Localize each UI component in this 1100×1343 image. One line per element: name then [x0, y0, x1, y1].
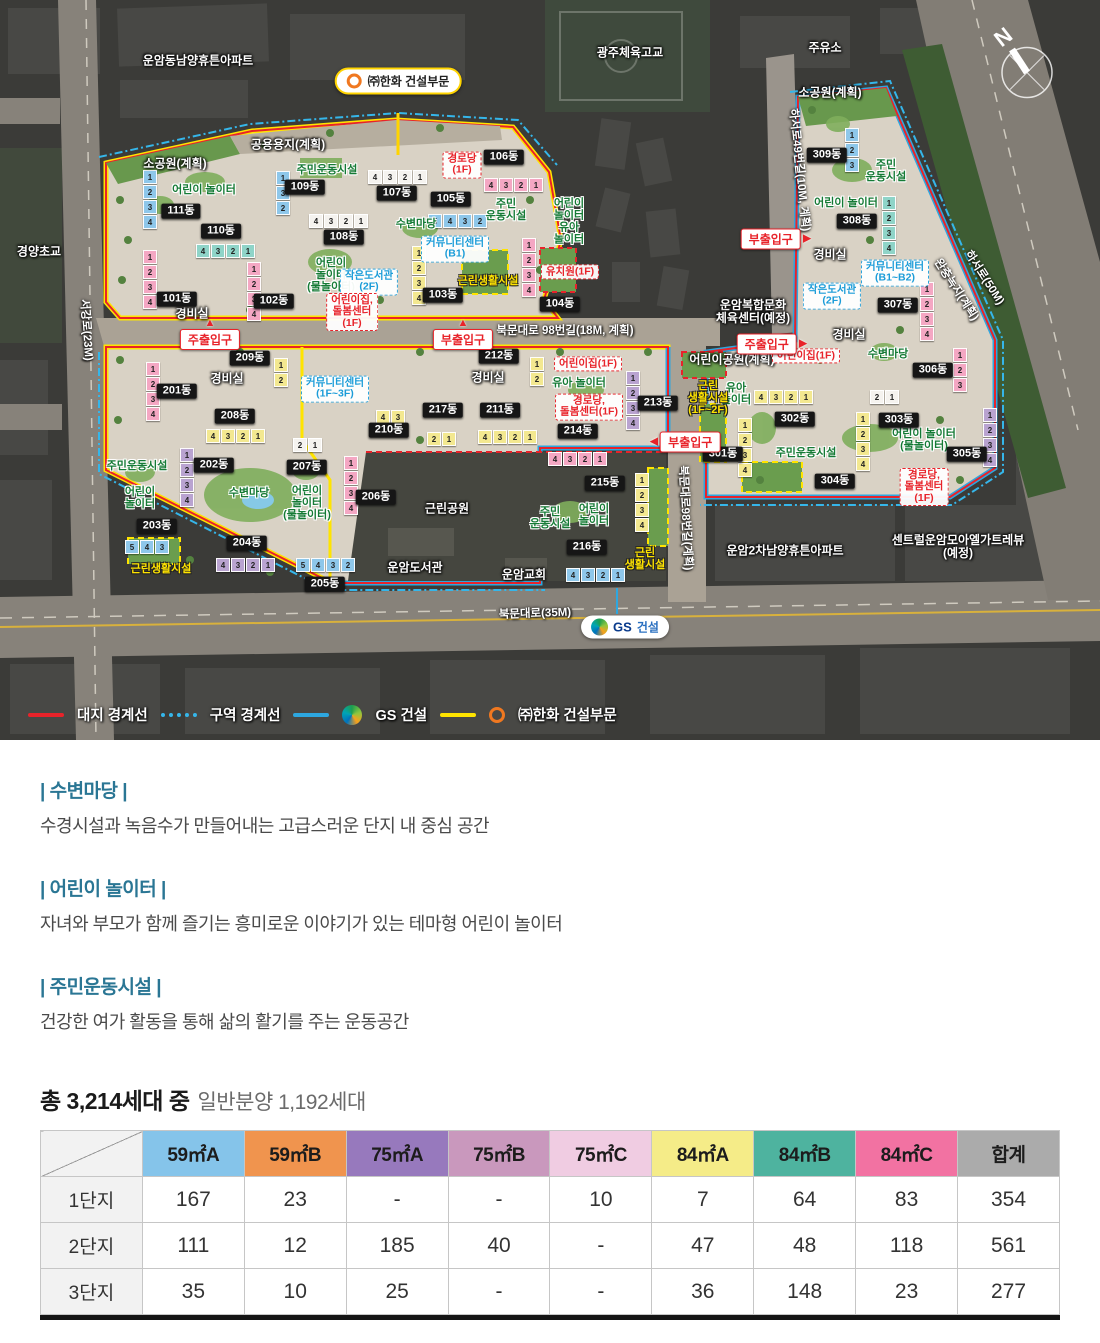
facility-label-red: 유치원(1F)	[541, 264, 599, 279]
unit-cell: 4	[566, 568, 580, 582]
building-badge: 101동	[157, 292, 197, 307]
unit-cell: 3	[845, 158, 859, 172]
landmark-label: 공용용지(계획)	[251, 139, 325, 152]
landmark-label: 소공원(계획)	[798, 87, 861, 100]
unit-cell: 4	[180, 493, 194, 507]
building-units: 543	[125, 540, 169, 554]
unit-cell: 2	[226, 244, 240, 258]
unit-cell: 3	[635, 503, 649, 517]
building-units: 21	[870, 390, 899, 404]
landmark-label: 운암2차남양휴튼아파트	[726, 545, 843, 558]
unit-cell: 1	[261, 558, 275, 572]
landmark-label: 운암교회	[502, 569, 546, 582]
facility-label-red: 경로당, 돌봄센터(1F)	[555, 394, 623, 421]
table-header-cell: 75㎡C	[550, 1131, 652, 1177]
facility-label-green: 주민운동시설	[776, 448, 837, 460]
facility-label-green: 유아 놀이터	[552, 378, 606, 390]
landmark-label: 광주체육고교	[597, 47, 663, 60]
value-cell: 48	[754, 1223, 856, 1269]
unit-cell: 1	[885, 390, 899, 404]
value-cell: -	[448, 1269, 550, 1315]
building-badge: 207동	[287, 460, 327, 475]
building-badge: 104동	[540, 297, 580, 312]
legend-hanwha-label: ㈜한화 건설부문	[518, 704, 617, 725]
unit-cell: 2	[344, 471, 358, 485]
landmark-label: 센트럴운암모아엘가트레뷰(예정)	[887, 534, 1029, 560]
unit-cell: 3	[493, 430, 507, 444]
unit-cell: 3	[581, 568, 595, 582]
unit-cell: 2	[236, 429, 250, 443]
unit-cell: 2	[143, 185, 157, 199]
hanwha-logo-icon	[347, 74, 362, 89]
entrance-marker: ▲주출입구	[180, 318, 240, 350]
svg-text:N: N	[989, 23, 1017, 52]
unit-cell: 2	[143, 265, 157, 279]
unit-cell: 4	[635, 518, 649, 532]
building-units: 4321	[206, 429, 265, 443]
building-badge: 205동	[305, 577, 345, 592]
unit-cell: 2	[738, 433, 752, 447]
summary-general: 일반분양 1,192세대	[197, 1091, 365, 1114]
unit-cell: 2	[412, 261, 426, 275]
facility-label-green: 주민운동시설	[107, 461, 168, 473]
entrance-marker: 주출입구▶	[737, 334, 808, 355]
building-badge: 102동	[254, 294, 294, 309]
facility-label-red: 경로당, 돌봄센터 (1F)	[900, 468, 949, 506]
table-header-cell: 84㎡C	[856, 1131, 958, 1177]
facility-label-yellow: 근린 생활시설	[625, 548, 665, 572]
gs-callout-line	[616, 588, 618, 614]
entrance-marker: ◀부출입구	[650, 432, 721, 453]
building-badge: 103동	[423, 288, 463, 303]
legend-zone-boundary-swatch	[161, 713, 197, 717]
unit-cell: 1	[529, 178, 543, 192]
unit-cell: 4	[146, 407, 160, 421]
unit-table-wrap: 59㎡A59㎡B75㎡A75㎡B75㎡C84㎡A84㎡B84㎡C합계 1단지16…	[40, 1130, 1060, 1320]
building-units: 12	[274, 358, 288, 387]
summary-total: 총 3,214세대 중	[40, 1088, 189, 1114]
building-badge: 307동	[878, 298, 918, 313]
building-badge: 305동	[947, 447, 987, 462]
unit-cell: 1	[611, 568, 625, 582]
building-units: 4321	[196, 244, 255, 258]
unit-cell: 1	[442, 432, 456, 446]
unit-cell: 4	[143, 215, 157, 229]
landmark-label: 주유소	[808, 42, 841, 55]
unit-cell: 1	[180, 448, 194, 462]
unit-cell: 4	[754, 390, 768, 404]
unit-cell: 2	[514, 178, 528, 192]
building-badge: 212동	[479, 349, 519, 364]
table-header-cell: 75㎡A	[346, 1131, 448, 1177]
unit-cell: 3	[769, 390, 783, 404]
building-units: 1234	[344, 456, 358, 515]
unit-cell: 5	[125, 540, 139, 554]
unit-cell: 4	[196, 244, 210, 258]
hanwha-callout-line	[397, 113, 400, 155]
site-plan-map: 1234123412341234543243214321432113243211…	[0, 0, 1100, 740]
building-badge: 203동	[137, 519, 177, 534]
building-units: 123	[845, 128, 859, 172]
building-units: 4321	[368, 170, 427, 184]
unit-cell: 3	[882, 226, 896, 240]
unit-cell: 2	[578, 452, 592, 466]
unit-cell: 3	[155, 540, 169, 554]
value-cell: 354	[958, 1177, 1060, 1223]
facility-label-green: 주민운동시설	[297, 165, 358, 177]
unit-cell: 2	[953, 363, 967, 377]
unit-cell: 4	[738, 463, 752, 477]
building-badge: 302동	[775, 412, 815, 427]
unit-cell: 4	[143, 295, 157, 309]
building-units: 12	[530, 357, 544, 386]
legend-gs-bold: GS	[375, 708, 396, 724]
building-units: 4321	[478, 430, 537, 444]
facility-label-red: 어린이집(1F)	[554, 356, 622, 371]
facility-label-green: 주민 운동시설	[486, 199, 526, 223]
table-header-cell: 84㎡B	[754, 1131, 856, 1177]
section-desc: 수경시설과 녹음수가 만들어내는 고급스러운 단지 내 중심 공간	[40, 812, 1100, 838]
unit-cell: 2	[276, 201, 290, 215]
unit-cell: 3	[499, 178, 513, 192]
unit-cell: 4	[920, 327, 934, 341]
landmark-label: 경비실	[813, 249, 846, 262]
building-units: 4321	[754, 390, 813, 404]
unit-cell: 2	[983, 423, 997, 437]
unit-cell: 3	[231, 558, 245, 572]
building-badge: 208동	[215, 409, 255, 424]
table-row: 1단지16723--1076483354	[41, 1177, 1060, 1223]
unit-cell: 4	[309, 214, 323, 228]
unit-cell: 1	[738, 418, 752, 432]
value-cell: 35	[142, 1269, 244, 1315]
unit-cell: 1	[344, 456, 358, 470]
unit-cell: 4	[247, 307, 261, 321]
building-badge: 105동	[431, 192, 471, 207]
building-badge: 106동	[484, 150, 524, 165]
building-badge: 109동	[285, 180, 325, 195]
unit-cell: 4	[548, 452, 562, 466]
legend-zone-boundary-label: 구역 경계선	[210, 704, 281, 725]
building-units: 1234	[522, 238, 536, 297]
value-cell: -	[550, 1223, 652, 1269]
unit-cell: 2	[339, 214, 353, 228]
unit-cell: 1	[241, 244, 255, 258]
building-units: 4321	[566, 568, 625, 582]
building-units: 1234	[856, 412, 870, 471]
unit-cell: 3	[522, 268, 536, 282]
building-units: 21	[293, 438, 322, 452]
building-badge: 309동	[807, 148, 847, 163]
section-exercise: | 주민운동시설 | 건강한 여가 활동을 통해 삶의 활기를 주는 운동공간	[40, 972, 1100, 1034]
unit-cell: 1	[953, 348, 967, 362]
unit-cell: 4	[443, 214, 457, 228]
unit-cell: 3	[180, 478, 194, 492]
facility-label-red: 경로당 (1F)	[443, 152, 482, 179]
building-units: 1234	[635, 473, 649, 532]
value-cell: 64	[754, 1177, 856, 1223]
legend-hanwha-logo-icon	[489, 707, 505, 723]
unit-cell: 1	[274, 358, 288, 372]
building-badge: 217동	[423, 403, 463, 418]
unit-cell: 3	[920, 312, 934, 326]
table-header-cell: 84㎡A	[652, 1131, 754, 1177]
facility-label-blue: 커뮤니티센터 (1F~3F)	[301, 376, 369, 403]
unit-cell: 1	[983, 408, 997, 422]
value-cell: 36	[652, 1269, 754, 1315]
table-row: 2단지1111218540-4748118561	[41, 1223, 1060, 1269]
entrance-marker: ▲부출입구	[433, 318, 493, 350]
entrance-arrow-icon: ▲	[205, 318, 216, 329]
unit-cell: 1	[856, 412, 870, 426]
building-badge: 107동	[377, 186, 417, 201]
table-header-cell: 합계	[958, 1131, 1060, 1177]
section-desc: 건강한 여가 활동을 통해 삶의 활기를 주는 운동공간	[40, 1008, 1100, 1034]
section-desc: 자녀와 부모가 함께 즐기는 흥미로운 이야기가 있는 테마형 어린이 놀이터	[40, 910, 1100, 936]
building-badge: 308동	[837, 214, 877, 229]
unit-cell: 2	[398, 170, 412, 184]
building-badge: 304동	[815, 474, 855, 489]
map-legend: 대지 경계선 구역 경계선 GS 건설 ㈜한화 건설부문	[28, 704, 617, 725]
facility-label-yellow: 근린생활시설	[458, 276, 519, 288]
unit-cell: 4	[522, 283, 536, 297]
entrance-label: 부출입구	[433, 329, 493, 350]
unit-cell: 4	[368, 170, 382, 184]
value-cell: 25	[346, 1269, 448, 1315]
landmark-label: 근린공원	[425, 503, 469, 516]
unit-cell: 1	[143, 250, 157, 264]
unit-cell: 4	[206, 429, 220, 443]
landmark-label: 경비실	[471, 372, 504, 385]
unit-cell: 1	[635, 473, 649, 487]
value-cell: 277	[958, 1269, 1060, 1315]
building-badge: 215동	[585, 476, 625, 491]
value-cell: 185	[346, 1223, 448, 1269]
facility-label-yellow: 근린생활시설	[131, 564, 192, 576]
unit-cell: 4	[856, 457, 870, 471]
landmark-label: 경비실	[832, 329, 865, 342]
unit-cell: 1	[146, 362, 160, 376]
facility-label-green: 주민 운동시설	[866, 160, 906, 184]
unit-cell: 3	[953, 378, 967, 392]
building-badge: 108동	[324, 230, 364, 245]
unit-cell: 1	[799, 390, 813, 404]
entrance-label: 부출입구	[741, 229, 801, 250]
landmark-label: 운암도서관	[387, 562, 442, 575]
road-label: 북문대로 98번길(18M, 계획)	[496, 325, 633, 337]
unit-cell: 1	[522, 238, 536, 252]
value-cell: 561	[958, 1223, 1060, 1269]
household-summary: 총 3,214세대 중일반분양 1,192세대	[40, 1082, 1100, 1116]
section-waterside: | 수변마당 | 수경시설과 녹음수가 만들어내는 고급스러운 단지 내 중심 …	[40, 776, 1100, 838]
entrance-arrow-icon: ◀	[650, 437, 658, 448]
row-label-cell: 3단지	[41, 1269, 143, 1315]
unit-cell: 2	[870, 390, 884, 404]
hanwha-callout-label: ㈜한화 건설부문	[368, 73, 450, 90]
hanwha-builder-callout: ㈜한화 건설부문	[335, 68, 462, 95]
legend-gs-rest: 건설	[400, 708, 427, 724]
unit-cell: 2	[293, 438, 307, 452]
facility-label-blue: 작은도서관 (2F)	[803, 283, 861, 310]
building-badge: 210동	[369, 423, 409, 438]
road-label: 서강로(23M)	[78, 299, 95, 361]
unit-cell: 2	[784, 390, 798, 404]
unit-cell: 4	[216, 558, 230, 572]
unit-cell: 1	[247, 262, 261, 276]
unit-cell: 1	[251, 429, 265, 443]
unit-cell: 3	[563, 452, 577, 466]
unit-cell: 3	[324, 214, 338, 228]
facility-label-green: 어린이 놀이터 (물놀이터)	[283, 486, 331, 522]
unit-cell: 4	[478, 430, 492, 444]
facility-label-green: 수변마당	[868, 349, 908, 361]
unit-cell: 2	[341, 558, 355, 572]
unit-cell: 2	[508, 430, 522, 444]
section-title: | 수변마당 |	[40, 776, 1100, 803]
unit-cell: 5	[296, 558, 310, 572]
facility-label-green: 수변마당	[396, 219, 436, 231]
facility-label-green: 수변마당	[229, 488, 269, 500]
value-cell: 12	[244, 1223, 346, 1269]
unit-cell: 1	[143, 170, 157, 184]
value-cell: -	[550, 1269, 652, 1315]
landmark-label: 운암복합문화 체육센터(예정)	[716, 299, 790, 325]
unit-cell: 3	[143, 200, 157, 214]
building-units: 4321	[548, 452, 607, 466]
value-cell: 167	[142, 1177, 244, 1223]
building-badge: 211동	[480, 403, 520, 418]
table-header-cell: 75㎡B	[448, 1131, 550, 1177]
building-units: 5432	[428, 214, 487, 228]
unit-cell: 2	[180, 463, 194, 477]
section-title: | 주민운동시설 |	[40, 972, 1100, 999]
value-cell: 7	[652, 1177, 754, 1223]
building-badge: 209동	[230, 351, 270, 366]
building-badge: 303동	[879, 413, 919, 428]
entrance-label: 주출입구	[180, 329, 240, 350]
unit-cell: 2	[247, 277, 261, 291]
info-area: | 수변마당 | 수경시설과 녹음수가 만들어내는 고급스러운 단지 내 중심 …	[0, 740, 1100, 1320]
legend-gs-line-swatch	[293, 713, 329, 717]
unit-cell: 1	[593, 452, 607, 466]
gs-callout-bold: GS	[613, 620, 632, 635]
compass-icon: N	[979, 23, 1065, 109]
building-badge: 202동	[194, 458, 234, 473]
gs-callout-rest: 건설	[637, 619, 659, 636]
legend-gs-logo-icon	[342, 705, 362, 725]
building-badge: 216동	[567, 540, 607, 555]
building-units: 1234	[920, 282, 934, 341]
legend-site-boundary-swatch	[28, 713, 64, 717]
value-cell: 23	[244, 1177, 346, 1223]
landmark-label: 운암동남양휴튼아파트	[143, 55, 253, 68]
unit-cell: 2	[274, 373, 288, 387]
gs-logo-icon	[591, 619, 608, 636]
facility-label-red: 어린이집, 돌봄센터 (1F)	[326, 293, 378, 331]
legend-site-boundary-label: 대지 경계선	[77, 704, 148, 725]
building-units: 4321	[216, 558, 275, 572]
unit-cell: 2	[856, 427, 870, 441]
building-units: 21	[427, 432, 456, 446]
unit-cell: 1	[308, 438, 322, 452]
unit-cell: 3	[326, 558, 340, 572]
unit-cell: 3	[211, 244, 225, 258]
entrance-arrow-icon: ▶	[803, 234, 811, 245]
value-cell: 40	[448, 1223, 550, 1269]
landmark-label: 소공원(계획)	[143, 158, 206, 171]
landmark-label: 경비실	[210, 373, 243, 386]
building-badge: 204동	[227, 536, 267, 551]
map-label-overlay: 1234123412341234543243214321432113243211…	[0, 0, 1100, 740]
building-units: 123	[953, 348, 967, 392]
landmark-label: 경양초교	[17, 246, 61, 259]
unit-count-table: 59㎡A59㎡B75㎡A75㎡B75㎡C84㎡A84㎡B84㎡C합계 1단지16…	[40, 1130, 1060, 1315]
facility-label-green: 어린이 놀이터	[125, 487, 155, 511]
building-badge: 110동	[201, 224, 241, 239]
brochure-page: 1234123412341234543243214321432113243211…	[0, 0, 1100, 1343]
unit-cell: 1	[626, 371, 640, 385]
facility-label-blue: 커뮤니티센터 (B1)	[421, 236, 489, 263]
building-units: 1234	[143, 170, 157, 229]
unit-cell: 2	[845, 143, 859, 157]
facility-label-blue: 작은도서관 (2F)	[340, 269, 398, 296]
facility-label-yellow: 근린 생활시설 (1F~2F)	[688, 381, 728, 417]
facility-label-green: 어린이 놀이터	[814, 198, 878, 210]
entrance-marker: 부출입구▶	[741, 229, 812, 250]
unit-cell: 4	[882, 241, 896, 255]
unit-cell: 4	[484, 178, 498, 192]
unit-cell: 1	[523, 430, 537, 444]
entrance-label: 부출입구	[660, 432, 720, 453]
value-cell: 118	[856, 1223, 958, 1269]
legend-hanwha-line-swatch	[440, 713, 476, 717]
value-cell: 23	[856, 1269, 958, 1315]
unit-cell: 1	[530, 357, 544, 371]
value-cell: -	[346, 1177, 448, 1223]
gs-builder-callout: GS 건설	[581, 616, 669, 639]
compass: N	[979, 23, 1065, 114]
value-cell: 83	[856, 1177, 958, 1223]
building-units: 5432	[296, 558, 355, 572]
facility-label-green: 어린이 놀이터 유아 놀이터	[554, 198, 584, 246]
unit-cell: 1	[845, 128, 859, 142]
building-units: 1234	[882, 196, 896, 255]
row-label-cell: 2단지	[41, 1223, 143, 1269]
unit-cell: 1	[354, 214, 368, 228]
unit-cell: 2	[427, 432, 441, 446]
unit-cell: 3	[143, 280, 157, 294]
unit-cell: 2	[522, 253, 536, 267]
facility-label-green: 주민 운동시설	[530, 507, 570, 531]
unit-cell: 2	[596, 568, 610, 582]
value-cell: 47	[652, 1223, 754, 1269]
unit-cell: 1	[413, 170, 427, 184]
building-units: 4321	[309, 214, 368, 228]
unit-cell: 3	[856, 442, 870, 456]
unit-cell: 4	[140, 540, 154, 554]
landmark-label: 어린이공원(계획)	[689, 354, 774, 367]
road-label: 북문대로98번길(계획)	[676, 465, 694, 571]
unit-cell: 2	[635, 488, 649, 502]
section-playground: | 어린이 놀이터 | 자녀와 부모가 함께 즐기는 흥미로운 이야기가 있는 …	[40, 874, 1100, 936]
section-title: | 어린이 놀이터 |	[40, 874, 1100, 901]
unit-cell: 4	[626, 416, 640, 430]
facility-label-green: 어린이 놀이터	[172, 185, 236, 197]
table-header-cell: 59㎡A	[142, 1131, 244, 1177]
building-units: 1234	[247, 262, 261, 321]
unit-cell: 1	[882, 196, 896, 210]
table-row: 3단지351025--3614823277	[41, 1269, 1060, 1315]
